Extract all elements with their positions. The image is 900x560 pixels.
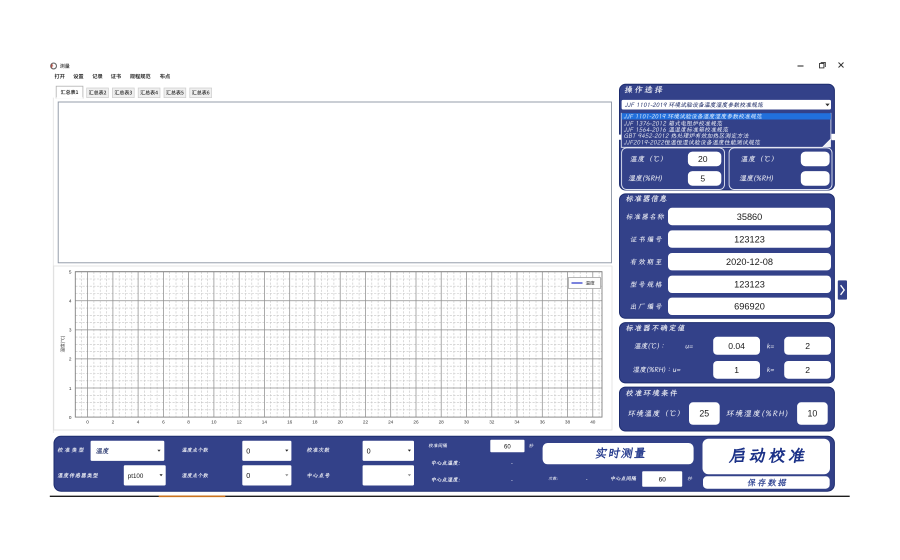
svg-text:38: 38 xyxy=(565,420,571,425)
svg-text:4: 4 xyxy=(69,299,72,304)
svg-text:20: 20 xyxy=(698,154,708,164)
svg-text:12: 12 xyxy=(237,420,243,425)
svg-text:2: 2 xyxy=(805,365,810,375)
svg-text:2020-12-08: 2020-12-08 xyxy=(726,257,773,267)
svg-text:16: 16 xyxy=(287,420,293,425)
svg-text:40: 40 xyxy=(590,420,596,425)
svg-text:0: 0 xyxy=(367,446,371,455)
svg-text:-: - xyxy=(511,478,513,484)
svg-text:-: - xyxy=(586,476,588,482)
svg-text:0: 0 xyxy=(69,415,72,420)
svg-text:6: 6 xyxy=(162,420,165,425)
svg-text:4: 4 xyxy=(137,420,140,425)
svg-text:28: 28 xyxy=(439,420,445,425)
svg-text:2: 2 xyxy=(69,357,72,362)
svg-text:0: 0 xyxy=(246,471,250,480)
svg-text:5: 5 xyxy=(700,174,705,184)
svg-text:5: 5 xyxy=(69,270,72,275)
svg-text:20: 20 xyxy=(338,420,344,425)
svg-text:2: 2 xyxy=(112,420,115,425)
svg-text:26: 26 xyxy=(413,420,419,425)
svg-text:2: 2 xyxy=(805,341,810,351)
svg-text:0: 0 xyxy=(86,420,89,425)
svg-text:10: 10 xyxy=(211,420,217,425)
svg-text:1: 1 xyxy=(734,365,739,375)
svg-text:1: 1 xyxy=(69,386,72,391)
svg-text:18: 18 xyxy=(312,420,318,425)
svg-text:123123: 123123 xyxy=(734,280,765,290)
svg-text:24: 24 xyxy=(388,420,394,425)
svg-text:30: 30 xyxy=(464,420,470,425)
svg-text:60: 60 xyxy=(504,444,511,450)
svg-text:8: 8 xyxy=(187,420,190,425)
svg-text:0.04: 0.04 xyxy=(728,341,745,351)
svg-text:pt100: pt100 xyxy=(128,473,144,480)
svg-text:22: 22 xyxy=(363,420,369,425)
svg-text:696920: 696920 xyxy=(734,302,765,312)
svg-text:14: 14 xyxy=(262,420,268,425)
svg-text:-: - xyxy=(511,461,513,467)
svg-text:60: 60 xyxy=(659,477,667,484)
svg-text:10: 10 xyxy=(808,409,818,419)
svg-text:3: 3 xyxy=(69,328,72,333)
svg-text:34: 34 xyxy=(514,420,520,425)
svg-text:36: 36 xyxy=(540,420,546,425)
svg-text:32: 32 xyxy=(489,420,495,425)
svg-text:0: 0 xyxy=(246,446,250,455)
svg-text:35860: 35860 xyxy=(737,212,763,222)
svg-text:25: 25 xyxy=(699,409,709,419)
svg-text:123123: 123123 xyxy=(734,234,765,244)
